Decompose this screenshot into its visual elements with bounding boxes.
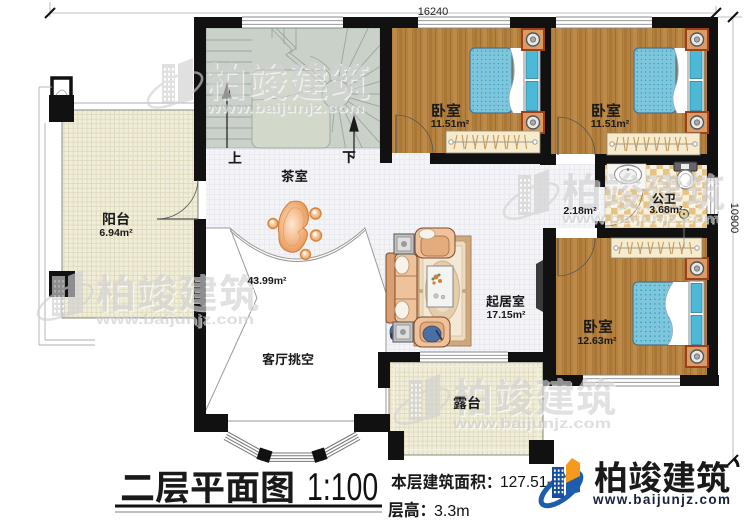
svg-text:16240: 16240: [418, 6, 449, 18]
svg-text:10900: 10900: [728, 203, 740, 234]
svg-text:3.3m: 3.3m: [434, 503, 470, 520]
svg-text:6.94m²: 6.94m²: [99, 227, 133, 239]
svg-text:3.68m²: 3.68m²: [649, 204, 683, 216]
svg-text:12.63m²: 12.63m²: [577, 335, 617, 347]
svg-text:1:100: 1:100: [307, 466, 378, 509]
svg-text:43.99m²: 43.99m²: [247, 275, 287, 287]
svg-text:11.51m²: 11.51m²: [431, 118, 470, 130]
svg-text:127.51: 127.51: [500, 474, 547, 491]
svg-text:www.baijunjz.com: www.baijunjz.com: [592, 492, 730, 507]
svg-text:17.15m²: 17.15m²: [486, 309, 526, 321]
svg-text:11.51m²: 11.51m²: [591, 118, 630, 130]
svg-text:2.18m²: 2.18m²: [563, 205, 597, 217]
